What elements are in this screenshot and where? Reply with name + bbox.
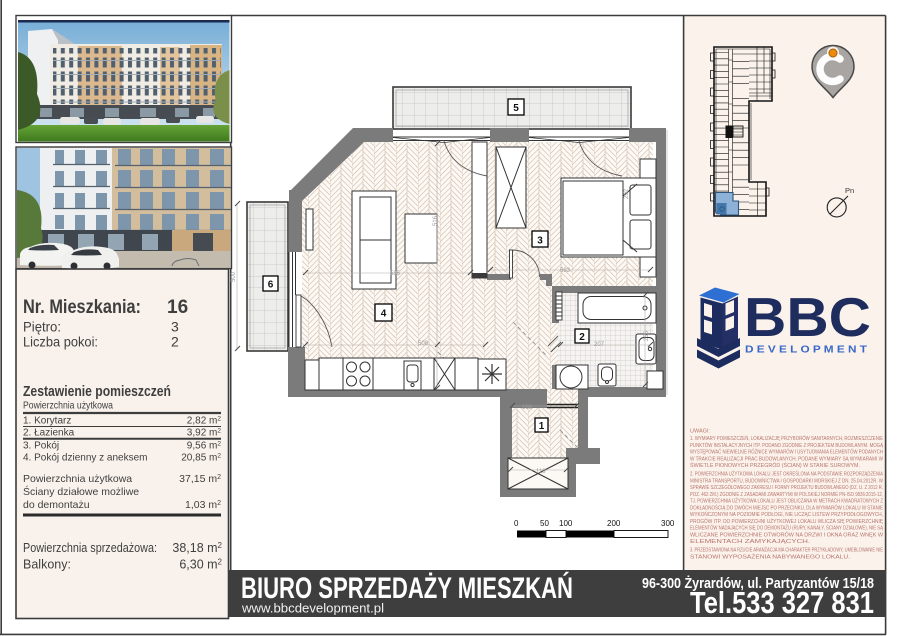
svg-text:WYSTĘPOWAĆ NIEWIELKIE RÓŻNICE: WYSTĘPOWAĆ NIEWIELKIE RÓŻNICE WYMIARÓW I…	[690, 449, 883, 456]
svg-text:6: 6	[268, 280, 274, 291]
svg-text:3. PRZEDSTAWIONA NA RZUCIE ARA: 3. PRZEDSTAWIONA NA RZUCIE ARANŻACJA MA …	[690, 547, 883, 554]
svg-text:WLICZANE POWIERZCHNIE OTWORÓW: WLICZANE POWIERZCHNIE OTWORÓW NA DRZWI I…	[690, 531, 884, 538]
svg-text:2: 2	[579, 332, 585, 343]
svg-text:16: 16	[167, 297, 188, 318]
svg-text:37,15 m2: 37,15 m2	[179, 473, 221, 485]
svg-text:Powierzchnia użytkowa: Powierzchnia użytkowa	[23, 473, 132, 485]
svg-text:6,30 m2: 6,30 m2	[179, 558, 222, 572]
svg-text:2. Łazienka: 2. Łazienka	[23, 428, 75, 439]
svg-text:PUNKTÓW INSTALACYJNYCH ITP. PO: PUNKTÓW INSTALACYJNYCH ITP. PODANO ZGODN…	[690, 442, 883, 449]
svg-text:585: 585	[390, 271, 401, 277]
svg-text:W TRAKCIE REALIZACJI PRAC BUDO: W TRAKCIE REALIZACJI PRAC BUDOWLANYCH. P…	[690, 456, 884, 462]
svg-text:STANOWI WYPOSAŻENIA NABYWANEGO: STANOWI WYPOSAŻENIA NABYWANEGO LOKALU.	[690, 554, 851, 561]
svg-text:BIURO SPRZEDAŻY MIESZKAŃ: BIURO SPRZEDAŻY MIESZKAŃ	[241, 571, 573, 605]
svg-text:ŚWIETLE PIONOWYCH PRZEGRÓD (ŚC: ŚWIETLE PIONOWYCH PRZEGRÓD (ŚCIAN) W STA…	[690, 461, 860, 469]
svg-text:ELEMENTÓW NADAJĄCYCH SIĘ DO DE: ELEMENTÓW NADAJĄCYCH SIĘ DO DEMONTAŻU (R…	[690, 524, 883, 532]
svg-text:Piętro:: Piętro:	[23, 319, 61, 335]
svg-text:207: 207	[594, 342, 605, 348]
svg-text:3: 3	[537, 236, 543, 247]
svg-text:3: 3	[171, 319, 179, 335]
svg-text:500: 500	[231, 271, 237, 282]
svg-text:Powierzchnia sprzedażowa:: Powierzchnia sprzedażowa:	[23, 541, 157, 555]
svg-text:MINISTRA TRANSPORTU, BUDOWNICT: MINISTRA TRANSPORTU, BUDOWNICTWA I GOSPO…	[690, 478, 884, 484]
svg-text:3. Pokój: 3. Pokój	[23, 441, 59, 452]
svg-text:4. Pokój dzienny z aneksem: 4. Pokój dzienny z aneksem	[23, 453, 148, 464]
svg-text:2: 2	[171, 334, 179, 350]
svg-text:D E V E L O P M E N T: D E V E L O P M E N T	[745, 344, 868, 356]
svg-text:0: 0	[514, 519, 519, 528]
svg-text:Nr. Mieszkania:: Nr. Mieszkania:	[23, 297, 141, 318]
svg-text:DOKŁADNOŚCIĄ DO DWÓCH MIEJSC P: DOKŁADNOŚCIĄ DO DWÓCH MIEJSC PO PRZECINK…	[690, 503, 883, 511]
svg-text:TJ. POWIERZCHNIA UŻYTKOWA LOKA: TJ. POWIERZCHNIA UŻYTKOWA LOKALU JEST OB…	[690, 498, 884, 505]
svg-text:BBC: BBC	[744, 286, 871, 348]
svg-text:20,85 m2: 20,85 m2	[181, 453, 221, 464]
svg-text:202: 202	[624, 188, 630, 199]
svg-text:4: 4	[381, 309, 387, 320]
svg-text:UWAGI:: UWAGI:	[690, 429, 710, 435]
svg-text:Pn: Pn	[845, 186, 854, 195]
svg-text:38,18 m2: 38,18 m2	[172, 541, 222, 555]
svg-text:www.bbcdevelopment.pl: www.bbcdevelopment.pl	[241, 602, 384, 616]
svg-text:SPRAWIE SZCZEGÓŁOWEGO ZAKRESU: SPRAWIE SZCZEGÓŁOWEGO ZAKRESU I FORMY PR…	[690, 484, 883, 491]
svg-text:PROGÓW ITP. DO POWIERZCHNI UŻY: PROGÓW ITP. DO POWIERZCHNI UŻYTKOWEJ LOK…	[690, 518, 883, 525]
svg-text:Tel.533 327 831: Tel.533 327 831	[690, 585, 874, 620]
svg-text:119: 119	[536, 469, 546, 475]
svg-text:5: 5	[513, 103, 519, 114]
svg-text:1. WYMIARY POMIESZCZEŃ, LOKALI: 1. WYMIARY POMIESZCZEŃ, LOKALIZACJĘ PRZY…	[690, 435, 883, 442]
svg-text:1: 1	[539, 421, 545, 432]
svg-text:1. Korytarz: 1. Korytarz	[23, 416, 71, 427]
svg-text:9,56 m2: 9,56 m2	[187, 441, 222, 452]
svg-text:200: 200	[607, 519, 621, 528]
svg-text:POZ. 462 ZM.) ZGODNIE Z ZASADA: POZ. 462 ZM.) ZGODNIE Z ZASADAMI ZAWARTY…	[690, 492, 883, 498]
svg-text:Ściany działowe możliwe: Ściany działowe możliwe	[23, 485, 139, 498]
svg-text:do demontażu: do demontażu	[23, 499, 90, 511]
svg-text:255: 255	[644, 330, 650, 341]
svg-text:ELEMENTACH ZAMYKAJĄCYCH.: ELEMENTACH ZAMYKAJĄCYCH.	[690, 539, 811, 545]
svg-text:100: 100	[559, 519, 573, 528]
svg-text:Zestawienie pomieszczeń: Zestawienie pomieszczeń	[23, 383, 171, 400]
svg-text:1,03 m2: 1,03 m2	[185, 499, 221, 511]
svg-text:Balkony:: Balkony:	[23, 558, 71, 572]
svg-text:Powierzchnia użytkowa: Powierzchnia użytkowa	[23, 401, 113, 412]
svg-text:583: 583	[560, 268, 571, 274]
svg-text:Liczba pokoi:: Liczba pokoi:	[23, 334, 98, 350]
svg-text:2. POWIERZCHNIA UŻYTKOWA LOKAL: 2. POWIERZCHNIA UŻYTKOWA LOKALU JEST OKR…	[690, 470, 883, 478]
svg-text:508: 508	[418, 341, 429, 347]
svg-text:WYKOŃCZONYM NA POZIOMIE PODŁOG: WYKOŃCZONYM NA POZIOMIE PODŁOGI, NIE LIC…	[690, 511, 883, 518]
svg-text:2,82 m2: 2,82 m2	[187, 416, 222, 427]
svg-text:3,92 m2: 3,92 m2	[187, 428, 222, 439]
svg-text:168: 168	[522, 405, 533, 411]
svg-text:300: 300	[661, 519, 675, 528]
svg-text:516: 516	[433, 215, 439, 226]
svg-text:50: 50	[540, 519, 549, 528]
